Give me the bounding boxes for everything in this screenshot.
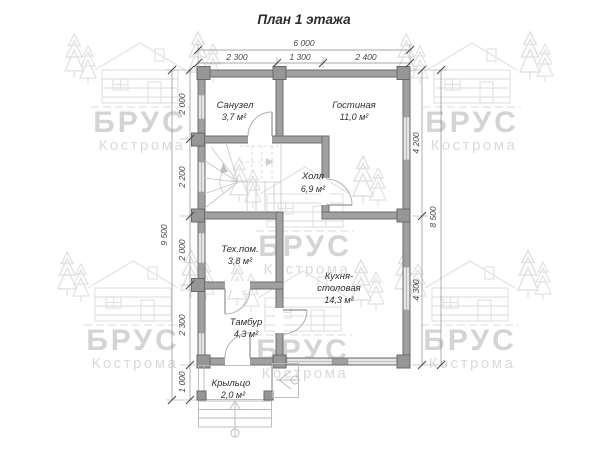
- watermark-brand: БРУС: [258, 230, 352, 263]
- room-label-holl: Холл: [301, 171, 325, 182]
- wall-sanuzel-gostinaya: [276, 70, 283, 143]
- dim-left-seg-2: 2 200: [177, 166, 187, 189]
- room-area-tambur: 4,3 м²: [234, 329, 259, 339]
- dim-left-seg-1: 2 000: [177, 93, 187, 116]
- staircase: [204, 143, 281, 212]
- room-label-kuhnya-2: столовая: [317, 283, 360, 294]
- watermark-city: Кострома: [92, 355, 179, 372]
- floor-plan-canvas: БРУС Кострома БРУС Кострома БРУС Костром…: [0, 0, 600, 450]
- watermark-brand: БРУС: [425, 106, 519, 139]
- dim-top-seg-2: 1 300: [289, 52, 311, 62]
- room-area-krylco: 2,0 м²: [220, 390, 246, 400]
- room-label-tehpom: Тех.пом.: [221, 244, 258, 255]
- watermark-brand: БРУС: [86, 324, 180, 357]
- watermark-layer: БРУС Кострома БРУС Кострома БРУС Костром…: [58, 32, 553, 382]
- dim-top-seg-3: 2 400: [354, 52, 377, 62]
- dim-top-total: 6 000: [293, 38, 315, 48]
- porch-post-right: [264, 391, 273, 400]
- room-area-holl: 6,9 м²: [301, 184, 326, 194]
- room-area-gostinaya: 11,0 м²: [340, 112, 370, 122]
- door-sanuzel: [248, 112, 272, 136]
- door-opening-kuhnya: [275, 308, 284, 333]
- stair-dashed-arrowhead: [266, 158, 274, 166]
- room-area-kuhnya: 14,3 м²: [324, 295, 354, 305]
- door-opening-sanuzel: [248, 135, 272, 144]
- watermark-city: Кострома: [431, 137, 518, 154]
- room-label-gostinaya: Гостиная: [332, 100, 375, 111]
- floor-plan-page: БРУС Кострома БРУС Кострома БРУС Костром…: [0, 0, 600, 450]
- dim-left-seg-4: 2 300: [177, 314, 187, 337]
- dim-left-seg-3: 2 000: [177, 239, 187, 262]
- dim-right-seg-1: 4 200: [411, 132, 421, 154]
- wall-holl-tehpom: [198, 212, 283, 219]
- room-label-krylco: Крыльцо: [212, 378, 251, 389]
- wall-exterior-top: [198, 70, 410, 77]
- door-opening-entrance: [225, 357, 250, 366]
- door-opening-tehpom: [225, 281, 250, 290]
- dim-top-seg-1: 2 300: [225, 52, 248, 62]
- watermark-brand: БРУС: [93, 106, 187, 139]
- watermark-brand: БРУС: [423, 324, 517, 357]
- dim-right-total: 8 500: [428, 206, 438, 228]
- room-area-tehpom: 3,8 м²: [228, 256, 253, 266]
- porch-post-left: [197, 391, 206, 400]
- watermark-city: Кострома: [99, 137, 186, 154]
- room-label-sanuzel: Санузел: [217, 100, 255, 111]
- room-label-tambur: Тамбур: [230, 317, 263, 328]
- dim-right-seg-2: 4 300: [411, 279, 421, 301]
- plan-title: План 1 этажа: [257, 12, 351, 27]
- dim-left-total: 9 500: [159, 224, 169, 246]
- door-kuhnya: [283, 310, 307, 334]
- room-area-sanuzel: 3,7 м²: [222, 112, 247, 122]
- dim-left-seg-5: 1 000: [177, 371, 187, 393]
- room-label-kuhnya-1: Кухня-: [325, 271, 353, 282]
- watermark-city: Кострома: [429, 355, 516, 372]
